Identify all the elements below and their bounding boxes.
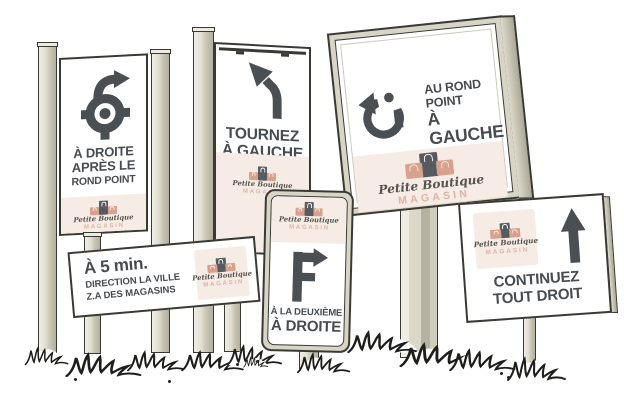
shopping-bag-icon <box>225 262 235 271</box>
straight-ahead-icon <box>555 205 593 267</box>
shopping-bag-icon <box>405 162 423 179</box>
billboard-content: AU ROND POINT À GAUCHE Petite Boutique M… <box>340 28 508 203</box>
roundabout-exit-right-icon <box>72 64 136 145</box>
sign-text: À LA DEUXIÈME À DROITE <box>270 304 342 336</box>
grass-dot <box>168 380 171 383</box>
grass-dot <box>507 376 510 379</box>
shopping-bag-icon <box>108 205 117 214</box>
sign-text: CONTINUEZ TOUT DROIT <box>465 266 609 310</box>
grass-dot <box>236 363 239 366</box>
shopping-bag-icon <box>208 264 218 273</box>
petite-boutique-logo: Petite Boutique MAGASIN <box>472 221 539 257</box>
shopping-bags-icon <box>249 166 276 181</box>
grass-tuft <box>296 352 352 374</box>
grass-tuft <box>126 350 188 372</box>
sign-line: ROND POINT <box>72 173 136 188</box>
sign-text: À DROITE APRÈS LE ROND POINT <box>72 144 136 188</box>
petite-boutique-logo: Petite Boutique MAGASIN <box>74 199 134 233</box>
billboard-mat: AU ROND POINT À GAUCHE Petite Boutique M… <box>335 23 514 209</box>
mounting-rail <box>219 47 306 54</box>
shopping-bag-icon <box>99 201 109 215</box>
grass-dot <box>74 378 77 381</box>
logo-subtitle: MAGASIN <box>82 223 125 232</box>
shopping-bags-icon <box>490 222 520 239</box>
logo-band: Petite Boutique MAGASIN <box>271 196 347 244</box>
logo-band: Petite Boutique MAGASIN <box>194 246 250 300</box>
sign-text: À 5 min. DIRECTION LA VILLE Z.A DES MAGA… <box>70 243 199 316</box>
signage-illustration: À DROITE APRÈS LE ROND POINT Petite Bout… <box>0 0 624 407</box>
turn-left-icon <box>234 58 292 123</box>
shopping-bag-icon <box>436 159 454 176</box>
shopping-bag-icon <box>313 208 323 217</box>
sign-straight-ahead: Petite Boutique MAGASIN CONTINUEZ TOUT D… <box>458 193 612 323</box>
sign-second-right: Petite Boutique MAGASIN À LA DEUXIÈME À … <box>261 189 354 353</box>
sign-roundabout-right: À DROITE APRÈS LE ROND POINT Petite Bout… <box>59 53 148 236</box>
shopping-bag-icon <box>249 171 258 180</box>
grass-tuft <box>506 356 568 382</box>
logo-subtitle: MAGASIN <box>287 225 330 233</box>
shopping-bags-icon <box>207 257 235 273</box>
sign-line: À DROITE <box>270 317 342 336</box>
signpost <box>38 46 57 354</box>
logo-band: Petite Boutique MAGASIN <box>473 209 539 269</box>
logo-band: Petite Boutique MAGASIN <box>61 193 146 233</box>
sign-roundabout-left: AU ROND POINT À GAUCHE Petite Boutique M… <box>327 15 521 216</box>
shopping-bag-icon <box>267 172 276 181</box>
shopping-bag-icon <box>509 228 520 238</box>
petite-boutique-logo: Petite Boutique MAGASIN <box>278 201 339 244</box>
roundabout-exit-left-icon <box>351 51 428 144</box>
shopping-bag-icon <box>258 167 268 181</box>
shopping-bags-icon <box>90 200 117 215</box>
sign-text: AU ROND POINT À GAUCHE <box>424 75 505 148</box>
grass-dot <box>218 360 221 363</box>
shopping-bags-icon <box>295 202 322 217</box>
petite-boutique-logo: Petite Boutique MAGASIN <box>375 146 486 209</box>
shopping-bags-icon <box>404 149 454 179</box>
petite-boutique-logo: Petite Boutique MAGASIN <box>191 256 253 291</box>
sign-face: Petite Boutique MAGASIN À LA DEUXIÈME À … <box>267 195 348 347</box>
shopping-bag-icon <box>295 207 305 216</box>
shopping-bag-icon <box>90 206 99 215</box>
grass-dot <box>500 372 503 375</box>
grass-dot <box>256 360 259 363</box>
shopping-bag-icon <box>490 229 501 239</box>
second-exit-right-icon <box>284 246 332 305</box>
sign-header: Petite Boutique MAGASIN <box>460 195 606 274</box>
